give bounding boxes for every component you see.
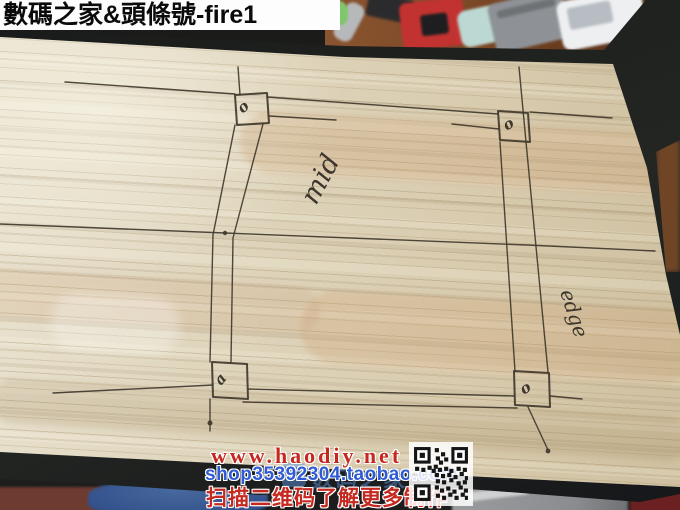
qr-code-pattern [413,446,469,502]
mid-label: mid [295,149,347,209]
edge-label: edge [555,286,593,340]
line-end-dot [546,449,551,454]
corner-mark: o [516,378,535,398]
watermark-banner: 數碼之家&頭條號-fire1 [0,0,340,30]
layout-lines [0,67,655,453]
line-end-dot [208,421,213,426]
corner-mark: o [499,114,518,134]
line-end-dot [223,231,227,235]
banner-text: 數碼之家&頭條號-fire1 [3,1,257,29]
pencil-layout-drawing: mid edge o o a o [0,0,680,510]
qr-code [409,442,473,506]
photo-canvas: mid edge o o a o 數碼之家&頭條號-fire1 数码之家 www… [0,0,680,510]
corner-squares [212,93,550,407]
